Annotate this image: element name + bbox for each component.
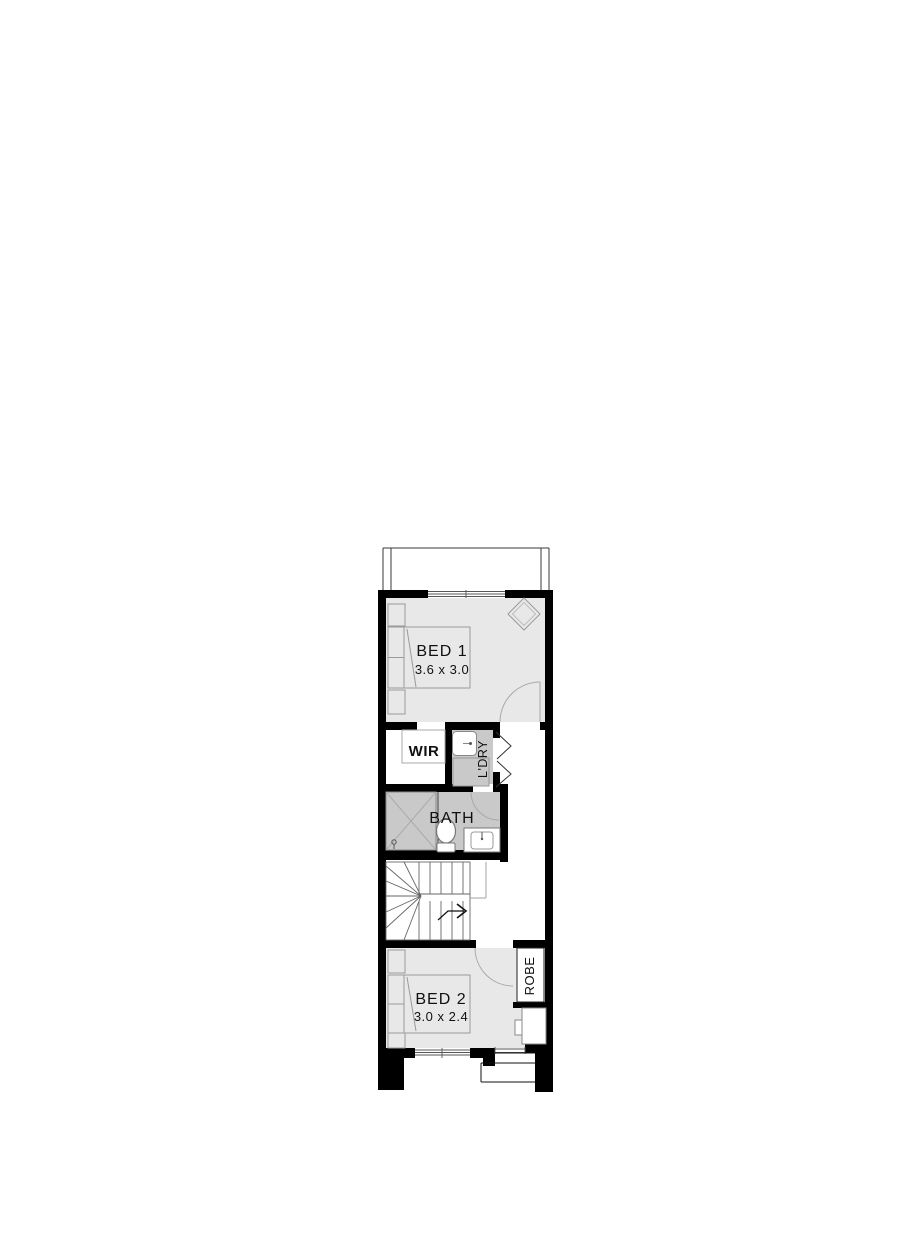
bath-label: BATH <box>429 810 474 827</box>
bedside-table-icon <box>388 950 405 973</box>
bedside-table-icon <box>388 604 405 626</box>
bedside-table-icon <box>388 1033 405 1048</box>
floor-plan-page: BED 1 3.6 x 3.0 WIR L'DRY BATH BED 2 3.0… <box>0 0 901 1245</box>
bed2-window <box>415 1048 470 1058</box>
ldry-label: L'DRY <box>476 740 490 778</box>
bed2-dimensions: 3.0 x 2.4 <box>414 1009 468 1024</box>
wir-label: WIR <box>409 743 440 760</box>
bedside-table-icon <box>388 690 405 714</box>
robe-label: ROBE <box>522 957 537 996</box>
vanity-basin-icon <box>464 828 500 852</box>
bed1-dimensions: 3.6 x 3.0 <box>415 662 469 677</box>
laundry-tub-icon <box>453 732 477 756</box>
bed2-label: BED 2 <box>415 991 466 1008</box>
bed1-label: BED 1 <box>416 643 467 660</box>
floor-plan-drawing: BED 1 3.6 x 3.0 WIR L'DRY BATH BED 2 3.0… <box>0 0 901 1245</box>
bed1-window <box>428 590 505 598</box>
